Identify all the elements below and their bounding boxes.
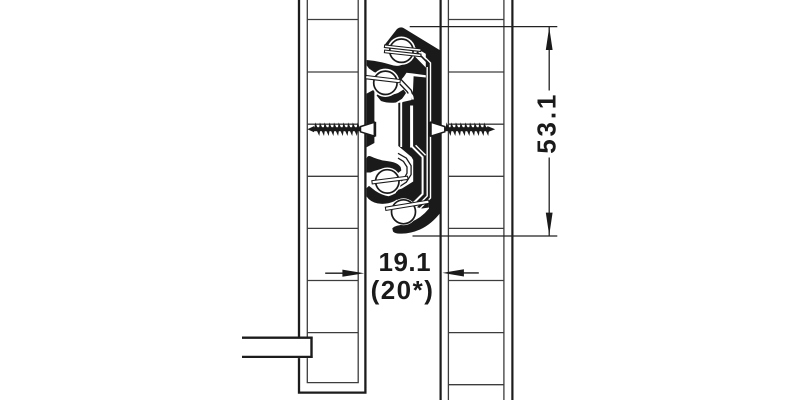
svg-text:19.1: 19.1: [378, 247, 431, 277]
svg-text:(20*): (20*): [371, 275, 435, 305]
svg-text:53.1: 53.1: [531, 92, 561, 154]
